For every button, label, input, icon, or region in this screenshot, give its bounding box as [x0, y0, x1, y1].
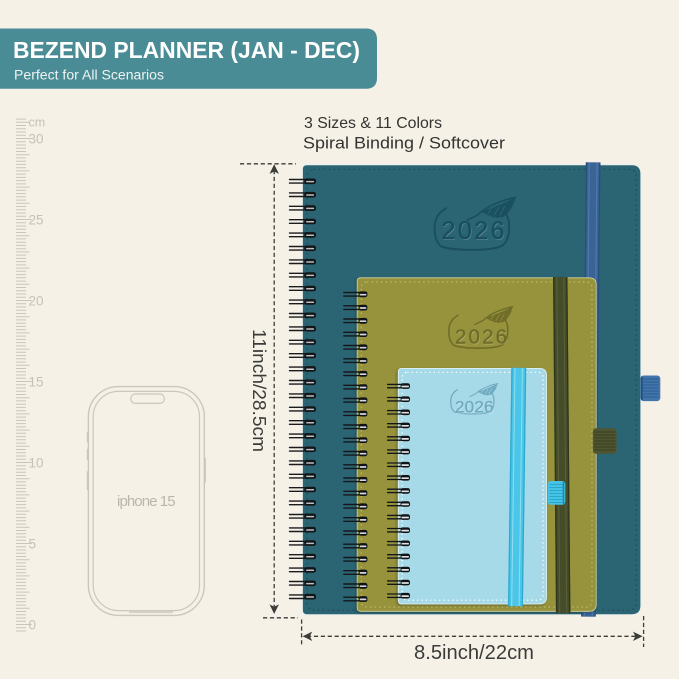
svg-text:25: 25: [29, 212, 44, 227]
svg-text:5: 5: [29, 536, 37, 551]
svg-text:15: 15: [29, 374, 44, 389]
svg-text:Spiral Binding / Softcover: Spiral Binding / Softcover: [303, 134, 506, 152]
svg-text:iphone 15: iphone 15: [117, 493, 176, 510]
svg-text:11inch/28.5cm: 11inch/28.5cm: [249, 329, 269, 452]
svg-text:2026: 2026: [455, 398, 494, 417]
svg-text:8.5inch/22cm: 8.5inch/22cm: [414, 642, 534, 664]
svg-text:10: 10: [29, 455, 44, 470]
svg-text:cm: cm: [29, 116, 46, 130]
svg-text:BEZEND PLANNER (JAN - DEC): BEZEND PLANNER (JAN - DEC): [13, 37, 360, 63]
svg-text:Perfect for All Scenarios: Perfect for All Scenarios: [14, 68, 164, 83]
svg-text:0: 0: [29, 617, 37, 632]
svg-text:30: 30: [29, 131, 44, 146]
svg-text:20: 20: [29, 293, 44, 308]
svg-text:3 Sizes & 11 Colors: 3 Sizes & 11 Colors: [304, 115, 442, 132]
